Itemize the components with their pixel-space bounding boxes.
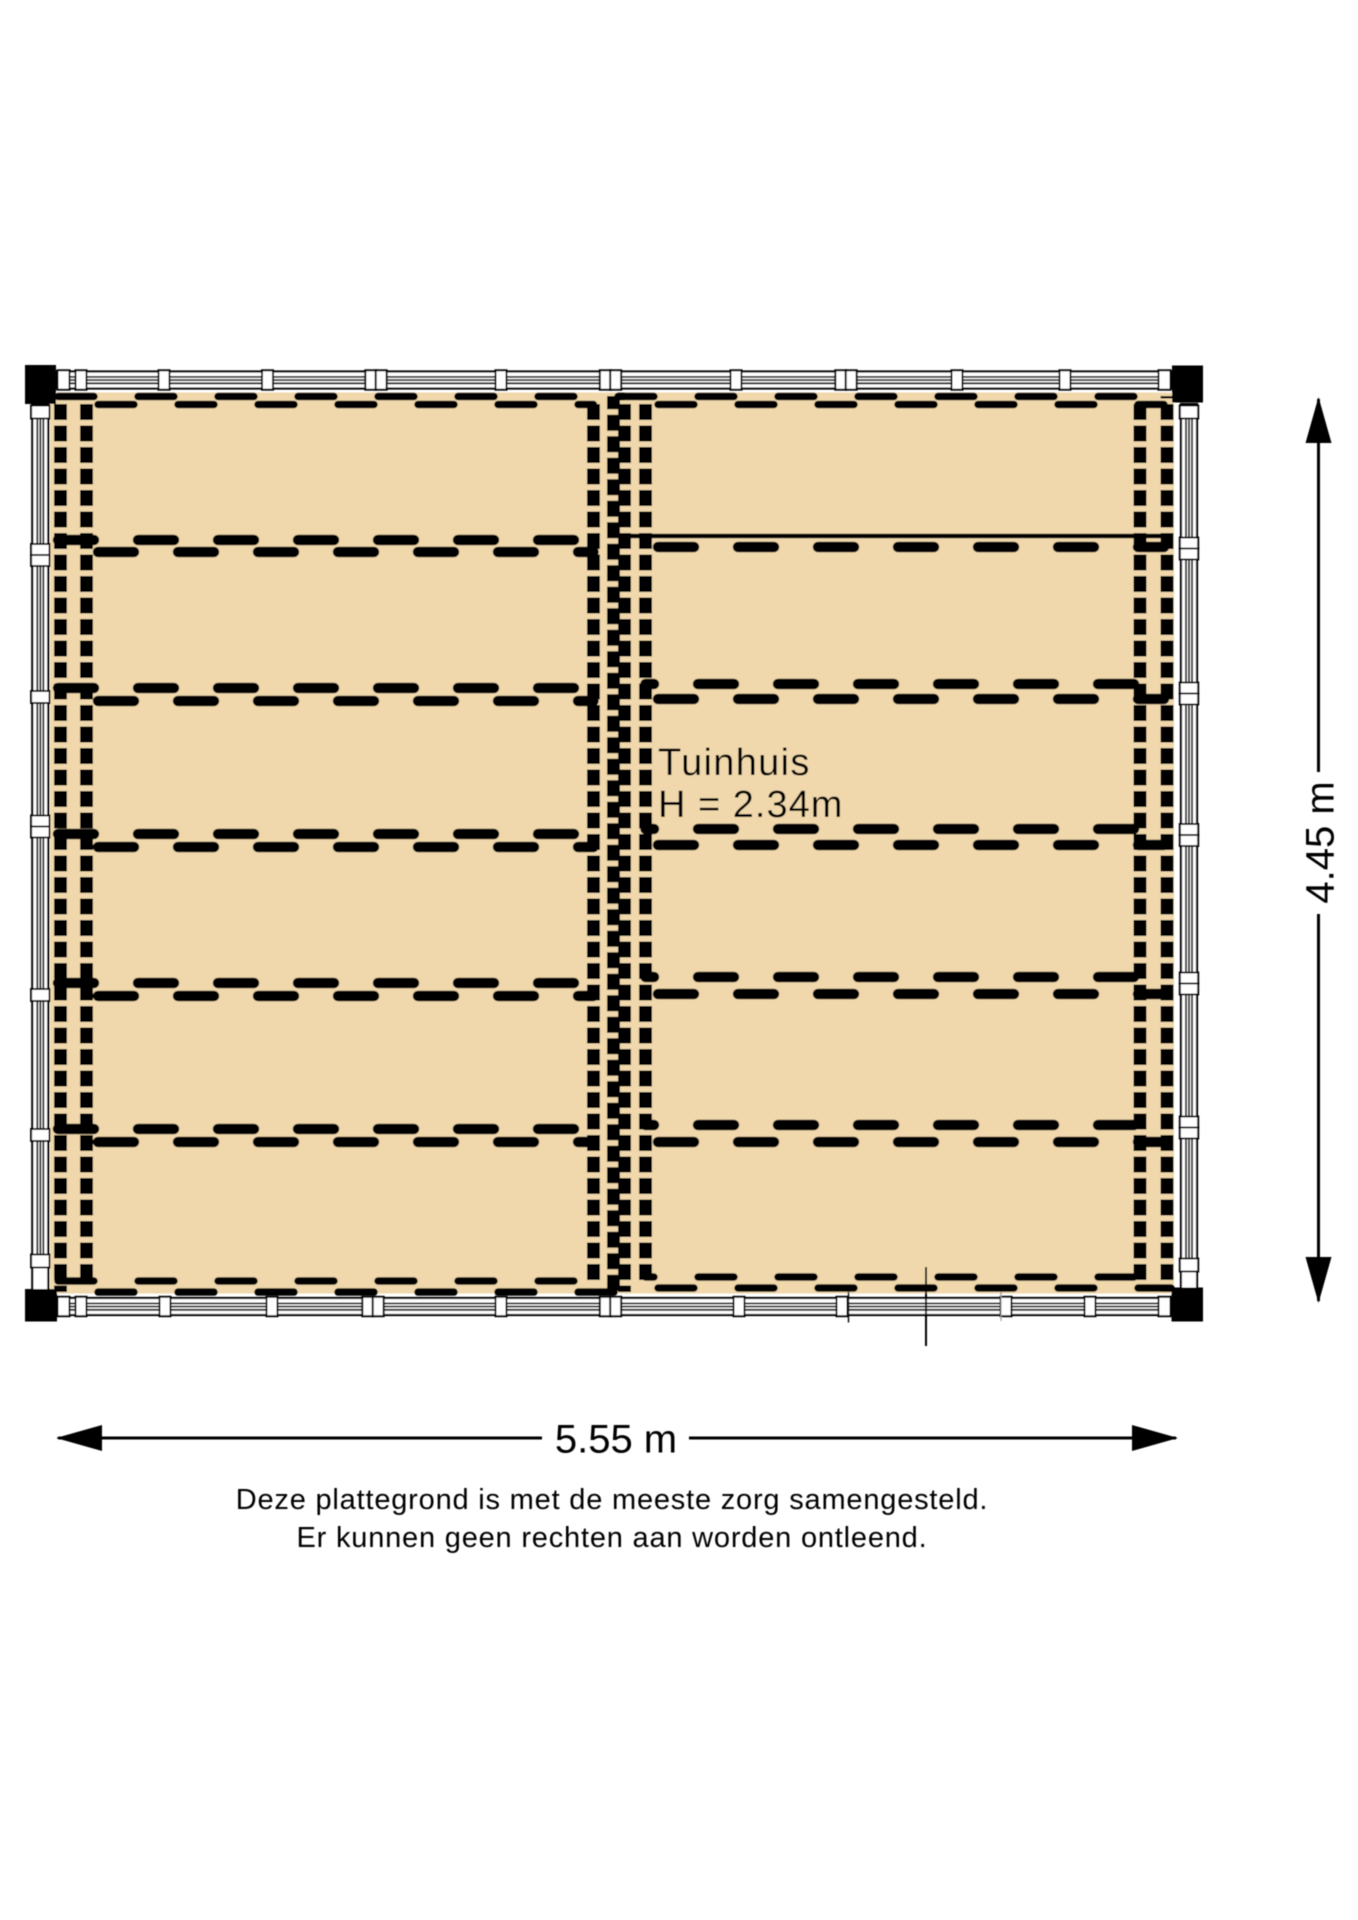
svg-text:H = 2.34m: H = 2.34m xyxy=(658,784,843,826)
svg-text:Er kunnen geen rechten aan wor: Er kunnen geen rechten aan worden ontlee… xyxy=(297,1522,928,1554)
svg-text:4.45 m: 4.45 m xyxy=(1299,781,1343,903)
svg-text:Tuinhuis: Tuinhuis xyxy=(658,742,811,784)
svg-text:5.55 m: 5.55 m xyxy=(555,1418,677,1462)
svg-text:Deze plattegrond is met de mee: Deze plattegrond is met de meeste zorg s… xyxy=(236,1484,988,1516)
